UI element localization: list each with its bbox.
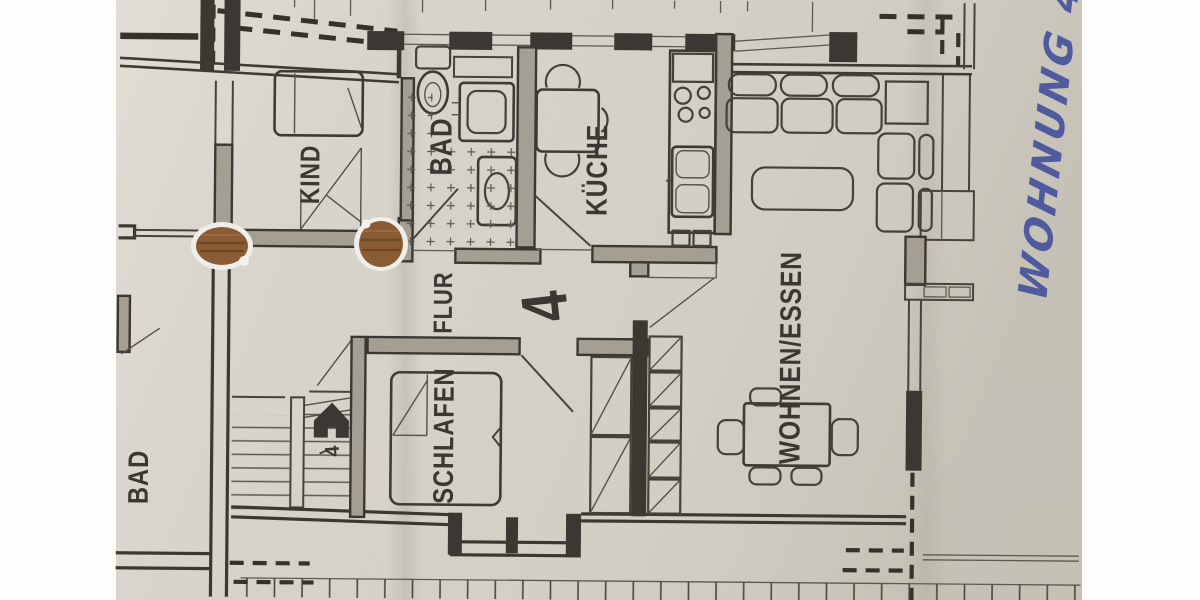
chimney-shaft bbox=[200, 0, 215, 71]
stair-treads bbox=[231, 415, 291, 512]
kueche-bottom-wall bbox=[592, 246, 716, 263]
wardrobe-wall bbox=[631, 320, 648, 516]
punch-hole-left bbox=[191, 222, 253, 270]
schlafen-top-wall bbox=[368, 337, 520, 354]
kind-left-wall bbox=[215, 145, 233, 232]
punch-hole-right bbox=[354, 217, 408, 271]
torn-paper-flap bbox=[362, 220, 371, 229]
chimney-shaft bbox=[224, 0, 241, 71]
room-label-wohnen-essen: WOHNEN/ESSEN bbox=[772, 251, 807, 464]
room-label-bad-neighbor: BAD bbox=[122, 450, 155, 504]
room-label-schlafen: SCHLAFEN bbox=[427, 367, 461, 504]
stairwell-apartment-number: 4 bbox=[322, 444, 345, 458]
scanned-floor-plan-photo: BAD 4 bbox=[0, 0, 1200, 600]
room-label-flur: FLUR bbox=[429, 271, 459, 333]
torn-paper-flap bbox=[239, 256, 249, 266]
floor-plan-canvas: BAD 4 bbox=[0, 0, 1200, 600]
schlafen-left-wall bbox=[350, 337, 366, 517]
room-label-kueche: KÜCHE bbox=[579, 124, 613, 216]
room-label-bad: BAD bbox=[424, 118, 458, 176]
room-label-kind: KIND bbox=[295, 145, 326, 205]
bad-bottom-wall bbox=[455, 249, 540, 264]
